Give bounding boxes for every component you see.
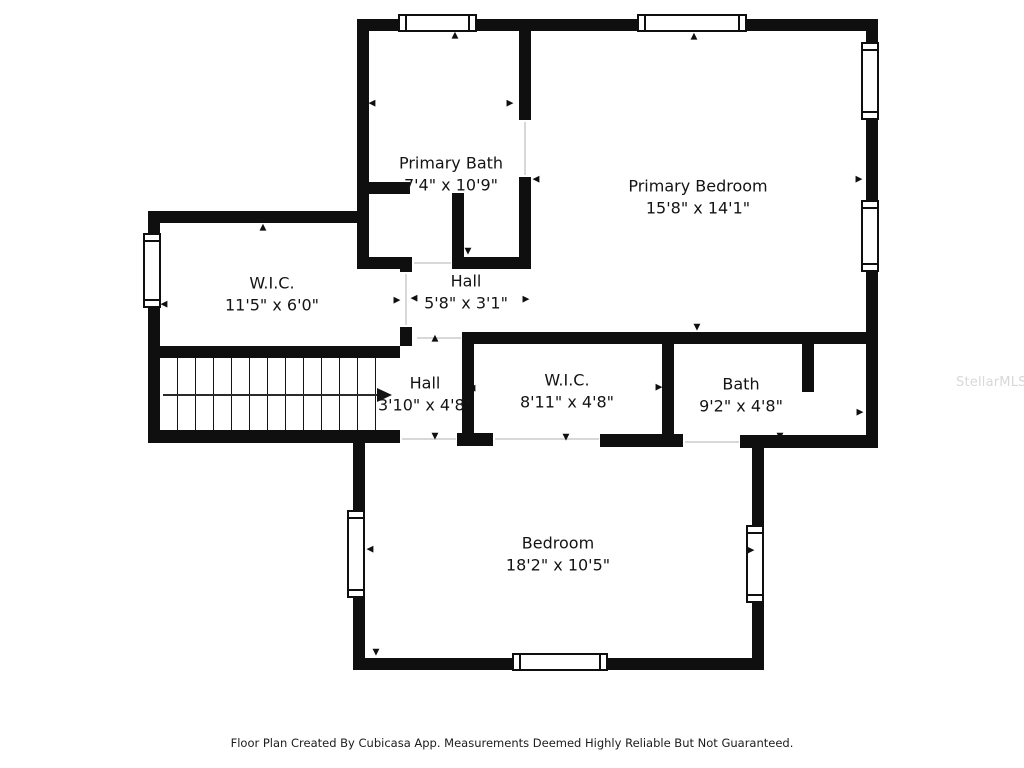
measure-arrow-icon: ▼ xyxy=(256,348,263,357)
measure-arrow-icon: ▶ xyxy=(857,409,864,418)
measure-arrow-icon: ◀ xyxy=(533,176,540,185)
room-dimensions: 3'10" x 4'8" xyxy=(378,394,472,416)
measure-arrow-icon: ▲ xyxy=(260,224,267,233)
window-symbol xyxy=(398,14,477,32)
measure-arrow-icon: ▶ xyxy=(656,384,663,393)
measure-arrow-icon: ◀ xyxy=(161,301,168,310)
measure-arrow-icon: ▼ xyxy=(432,433,439,442)
door-opening xyxy=(405,274,407,325)
window-symbol xyxy=(861,200,879,272)
measure-arrow-icon: ▲ xyxy=(565,336,572,345)
room-name: W.I.C. xyxy=(520,369,614,391)
measure-arrow-icon: ◀ xyxy=(411,295,418,304)
room-label-bedroom: Bedroom 18'2" x 10'5" xyxy=(506,532,610,575)
room-name: Hall xyxy=(378,372,472,394)
measure-arrow-icon: ▼ xyxy=(777,433,784,442)
room-label-primary-bath: Primary Bath 7'4" x 10'9" xyxy=(399,152,503,195)
room-label-wic-lower: W.I.C. 8'11" x 4'8" xyxy=(520,369,614,412)
room-label-wic-upper: W.I.C. 11'5" x 6'0" xyxy=(225,272,319,315)
measure-arrow-icon: ▼ xyxy=(563,434,570,443)
measure-arrow-icon: ▼ xyxy=(465,248,472,257)
window-symbol xyxy=(347,510,365,598)
wall xyxy=(802,332,814,392)
door-opening xyxy=(495,438,599,440)
window-symbol xyxy=(637,14,747,32)
window-symbol xyxy=(861,42,879,120)
wall xyxy=(452,257,531,269)
measure-arrow-icon: ◀ xyxy=(367,546,374,555)
measure-arrow-icon: ▲ xyxy=(432,335,439,344)
measure-arrow-icon: ▶ xyxy=(856,176,863,185)
window-symbol xyxy=(143,233,161,308)
door-opening xyxy=(685,441,739,443)
room-dimensions: 5'8" x 3'1" xyxy=(424,292,508,314)
wall xyxy=(357,19,369,269)
measure-arrow-icon: ▲ xyxy=(776,336,783,345)
measure-arrow-icon: ◀ xyxy=(369,100,376,109)
window-symbol xyxy=(512,653,608,671)
room-label-hall-upper: Hall 5'8" x 3'1" xyxy=(424,270,508,313)
room-label-primary-bedroom: Primary Bedroom 15'8" x 14'1" xyxy=(628,175,767,218)
door-opening xyxy=(402,438,456,440)
stair-direction-line xyxy=(163,394,379,396)
window-symbol xyxy=(746,525,764,603)
wall xyxy=(519,19,531,120)
wall xyxy=(519,177,531,269)
wall xyxy=(400,262,412,272)
wall xyxy=(148,211,369,223)
watermark: StellarMLS xyxy=(956,375,1024,390)
footer-disclaimer: Floor Plan Created By Cubicasa App. Meas… xyxy=(0,736,1024,750)
measure-arrow-icon: ◀ xyxy=(667,407,674,416)
measure-arrow-icon: ▶ xyxy=(523,296,530,305)
measure-arrow-icon: ▼ xyxy=(694,324,701,333)
measure-arrow-icon: ▲ xyxy=(452,32,459,41)
wall xyxy=(662,332,674,446)
room-name: Bath xyxy=(699,373,783,395)
wall xyxy=(148,346,400,358)
wall xyxy=(457,433,493,446)
room-dimensions: 11'5" x 6'0" xyxy=(225,294,319,316)
measure-arrow-icon: ▲ xyxy=(691,33,698,42)
room-name: Bedroom xyxy=(506,532,610,554)
room-label-bath: Bath 9'2" x 4'8" xyxy=(699,373,783,416)
measure-arrow-icon: ▶ xyxy=(748,547,755,556)
door-opening xyxy=(414,262,451,264)
room-dimensions: 8'11" x 4'8" xyxy=(520,391,614,413)
room-dimensions: 9'2" x 4'8" xyxy=(699,395,783,417)
floor-plan-canvas: ▲ ◀ ▶ ▼ ▲ ◀ ▶ ▼ ▲ ◀ ▶ ▼ ◀ ▶ ▲ ▼ ▲ ◀ ▶ ▼ … xyxy=(0,0,1024,768)
room-name: Primary Bedroom xyxy=(628,175,767,197)
door-opening xyxy=(524,122,526,175)
wall xyxy=(600,434,683,447)
room-label-hall-lower: Hall 3'10" x 4'8" xyxy=(378,372,472,415)
room-name: Primary Bath xyxy=(399,152,503,174)
wall xyxy=(400,327,412,346)
measure-arrow-icon: ▶ xyxy=(394,297,401,306)
room-name: W.I.C. xyxy=(225,272,319,294)
measure-arrow-icon: ▼ xyxy=(373,649,380,658)
room-dimensions: 18'2" x 10'5" xyxy=(506,554,610,576)
door-opening xyxy=(417,337,461,339)
room-dimensions: 7'4" x 10'9" xyxy=(399,174,503,196)
measure-arrow-icon: ▶ xyxy=(507,100,514,109)
room-name: Hall xyxy=(424,270,508,292)
room-dimensions: 15'8" x 14'1" xyxy=(628,197,767,219)
